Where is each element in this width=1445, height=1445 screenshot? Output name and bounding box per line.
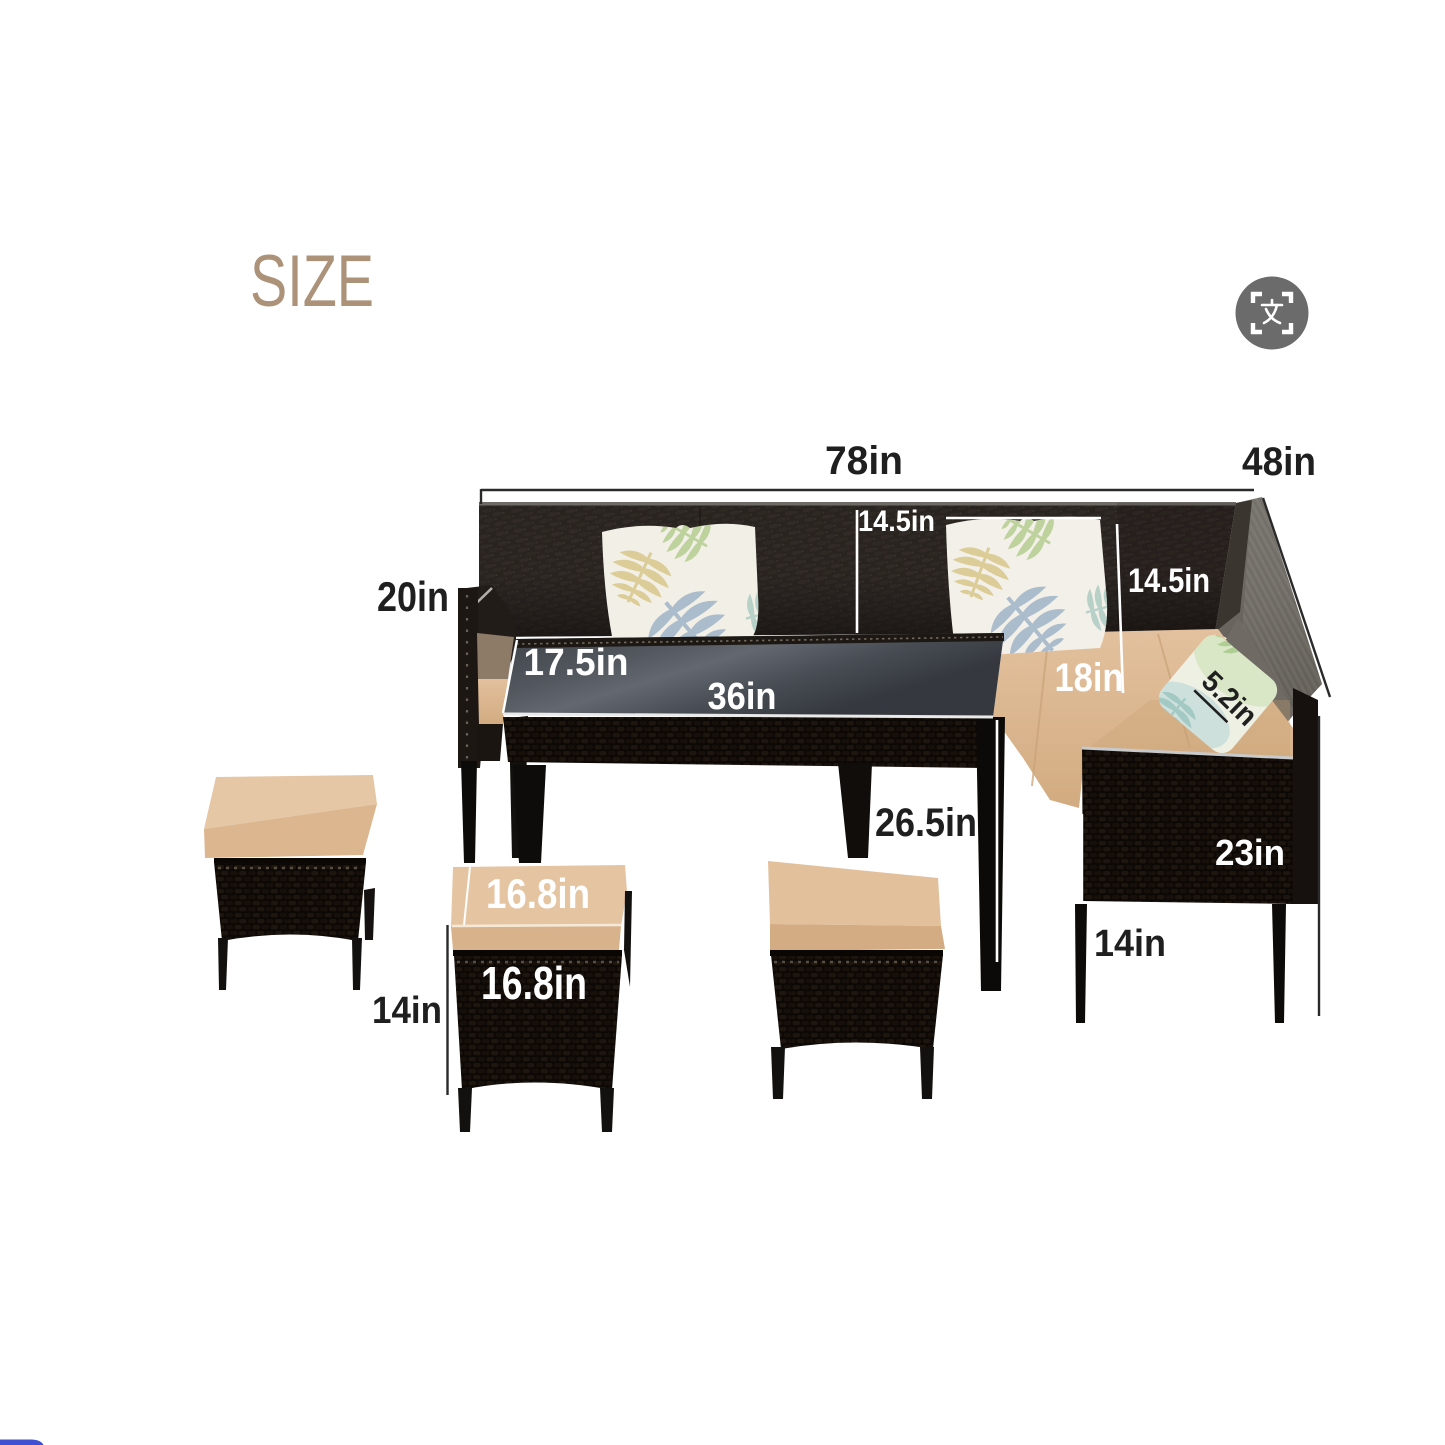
- svg-text:23in: 23in: [1215, 832, 1285, 873]
- svg-text:17.5in: 17.5in: [524, 642, 629, 684]
- svg-text:16.8in: 16.8in: [481, 957, 587, 1009]
- svg-text:16.8in: 16.8in: [486, 870, 590, 917]
- svg-text:78in: 78in: [825, 439, 903, 483]
- svg-text:14in: 14in: [372, 990, 442, 1032]
- svg-text:26.5in: 26.5in: [875, 801, 977, 845]
- svg-text:14.5in: 14.5in: [858, 505, 935, 538]
- svg-text:14in: 14in: [1094, 923, 1166, 965]
- svg-text:36in: 36in: [708, 676, 777, 718]
- svg-text:SIZE: SIZE: [250, 241, 374, 322]
- svg-text:48in: 48in: [1242, 440, 1316, 484]
- svg-text:14.5in: 14.5in: [1128, 562, 1210, 600]
- svg-text:20in: 20in: [377, 573, 449, 620]
- svg-text:18in: 18in: [1055, 656, 1124, 700]
